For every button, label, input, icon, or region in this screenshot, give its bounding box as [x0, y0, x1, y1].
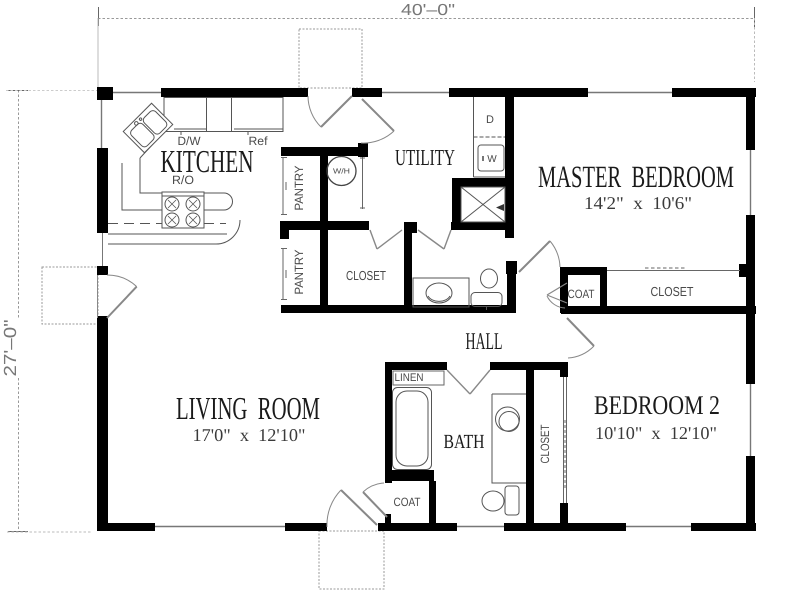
svg-text:17'0" x 12'10": 17'0" x 12'10"	[193, 425, 306, 445]
svg-text:PANTRY: PANTRY	[292, 250, 306, 295]
svg-text:D: D	[486, 114, 494, 126]
svg-text:D/W: D/W	[178, 134, 202, 148]
svg-text:UTILITY: UTILITY	[395, 145, 455, 170]
svg-text:PANTRY: PANTRY	[292, 166, 306, 211]
svg-text:LIVING ROOM: LIVING ROOM	[176, 390, 320, 426]
svg-text:10'10" x 12'10": 10'10" x 12'10"	[595, 423, 717, 443]
svg-text:MASTER BEDROOM: MASTER BEDROOM	[538, 159, 734, 194]
svg-text:W: W	[487, 154, 497, 165]
svg-text:Ref: Ref	[249, 134, 269, 148]
svg-text:CLOSET: CLOSET	[651, 284, 694, 299]
svg-text:BATH: BATH	[444, 431, 485, 453]
svg-text:R/O: R/O	[172, 173, 194, 187]
svg-text:40'–0": 40'–0"	[401, 2, 455, 19]
svg-text:27'–0": 27'–0"	[0, 320, 20, 377]
svg-text:BEDROOM 2: BEDROOM 2	[594, 390, 720, 420]
svg-text:COAT: COAT	[394, 495, 422, 509]
svg-text:14'2" x 10'6": 14'2" x 10'6"	[584, 193, 692, 213]
svg-text:W/H: W/H	[333, 167, 350, 176]
svg-text:LINEN: LINEN	[395, 372, 424, 384]
svg-text:COAT: COAT	[568, 287, 596, 301]
svg-text:CLOSET: CLOSET	[346, 268, 386, 283]
svg-text:CLOSET: CLOSET	[538, 424, 552, 464]
svg-text:HALL: HALL	[466, 329, 503, 355]
